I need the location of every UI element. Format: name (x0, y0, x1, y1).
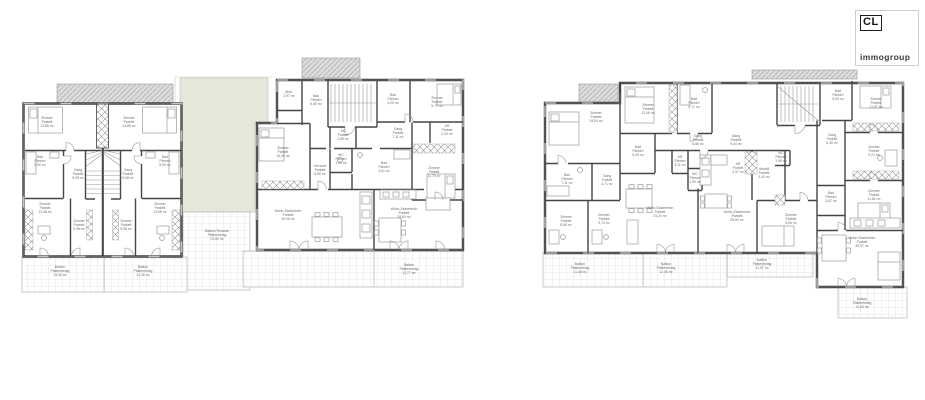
company-logo: CL immogroup (855, 10, 919, 66)
terrace-tiled-area (183, 212, 250, 290)
roof-dormer (579, 84, 618, 103)
roof-dormer (302, 58, 360, 78)
logo-company-name: immogroup (860, 52, 910, 62)
floorplan-canvas: Zimmer Parkett 14,88 m²Zimmer Parkett 14… (0, 0, 925, 400)
right-building (543, 70, 907, 318)
roof-strip (752, 70, 857, 79)
roof-strip (57, 84, 173, 103)
balcony-area (22, 257, 187, 292)
left-duplex-building (22, 84, 187, 292)
floorplan-drawing (0, 0, 925, 400)
logo-initials-box: CL (860, 15, 882, 31)
logo-initials: CL (863, 16, 879, 28)
shaft-crosshatch (97, 104, 109, 148)
middle-building (243, 58, 463, 287)
balcony-area (243, 251, 463, 287)
